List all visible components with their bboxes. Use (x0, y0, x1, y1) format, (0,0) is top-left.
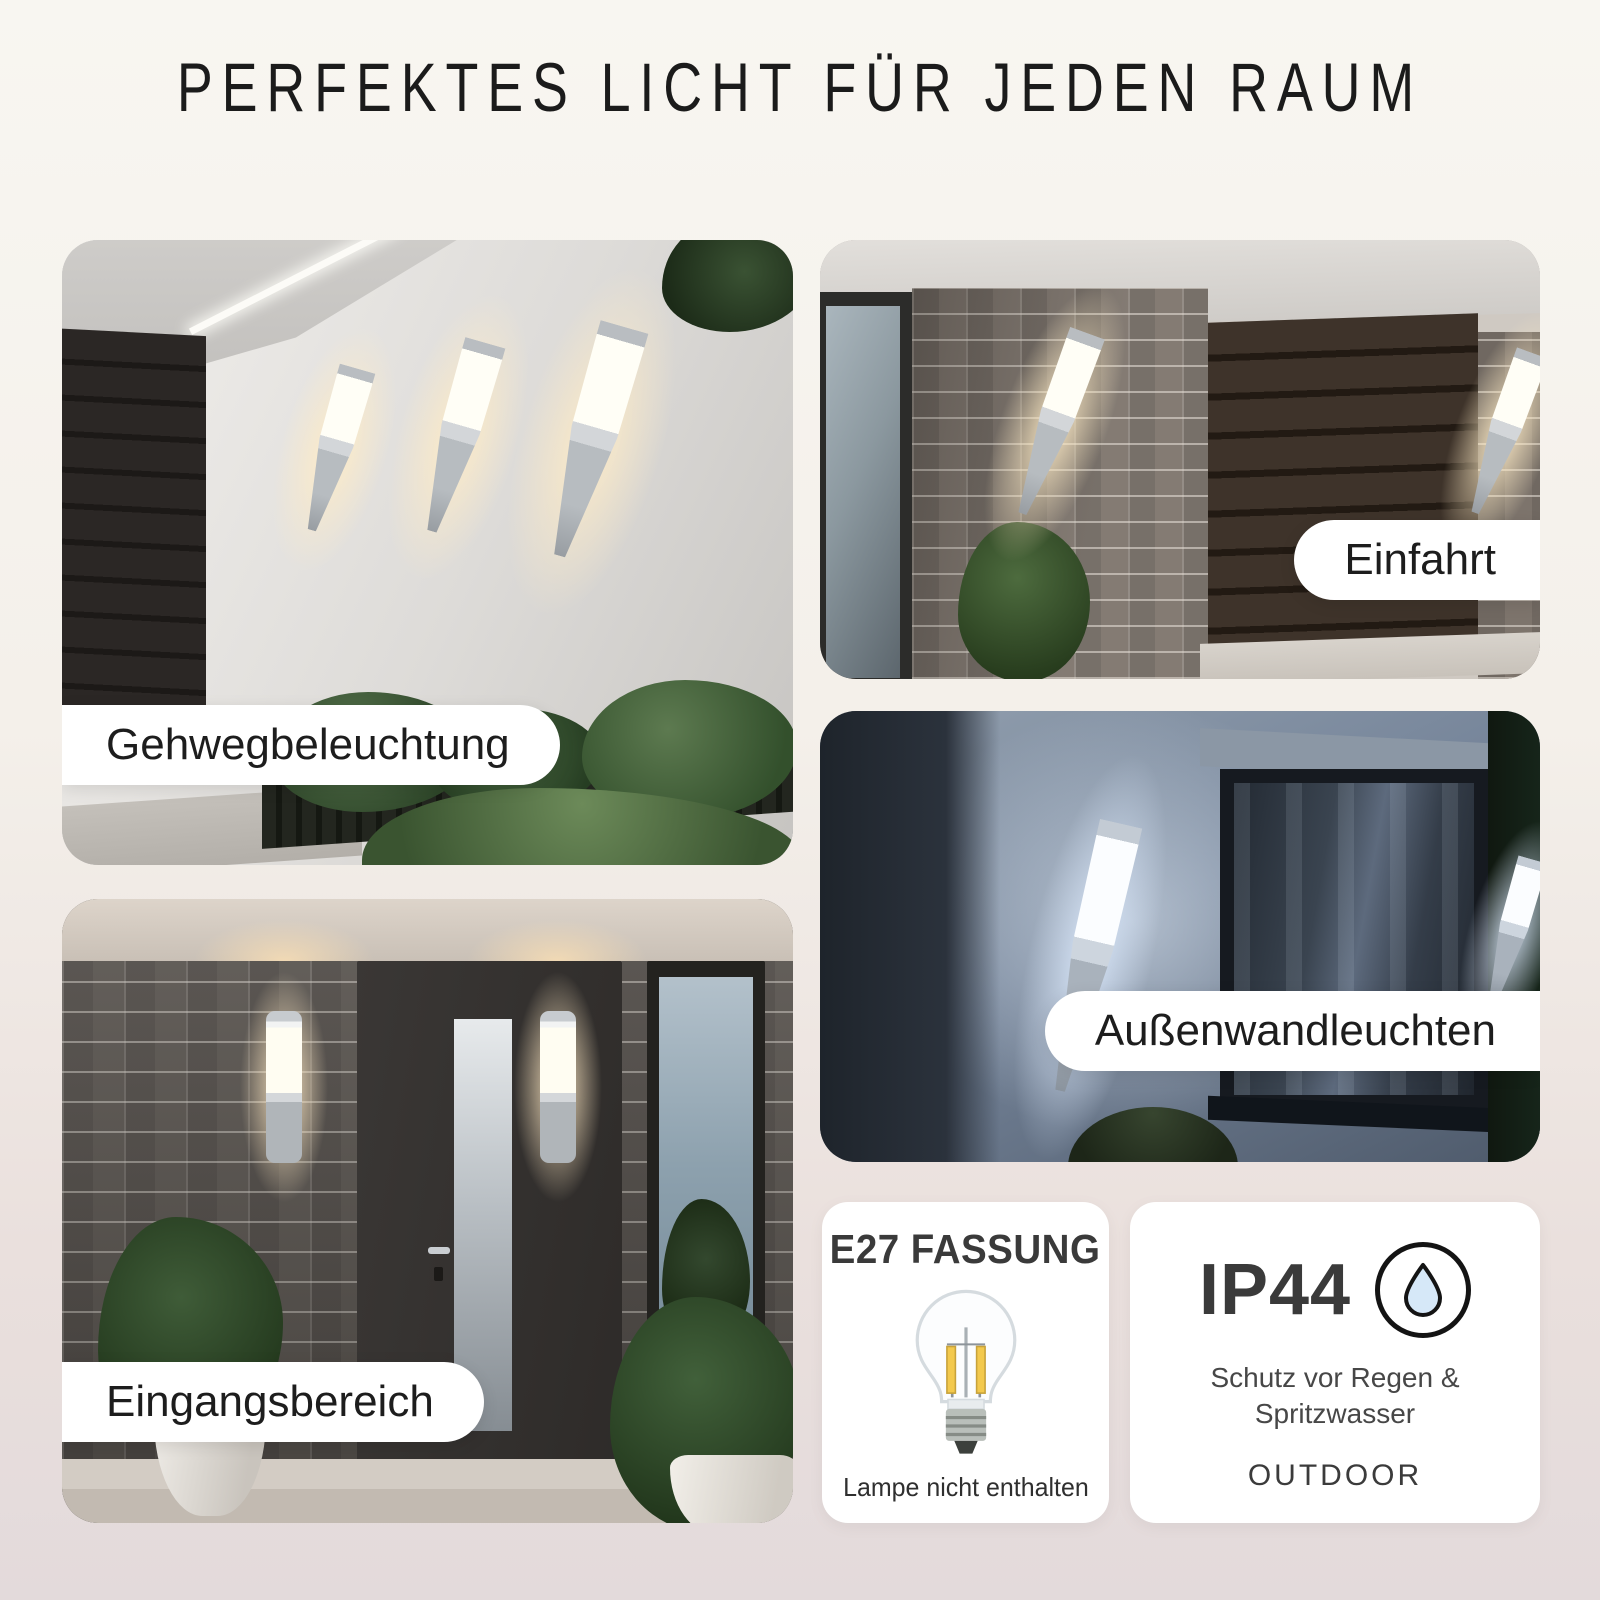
droplet-glyph (1400, 1261, 1446, 1319)
window-glass (826, 306, 900, 678)
label-aussenwandleuchten: Außenwandleuchten (1045, 991, 1540, 1071)
photo-driveway: Einfahrt (820, 240, 1540, 679)
ip44-title: IP44 (1199, 1249, 1351, 1331)
water-droplet-icon (1375, 1242, 1471, 1338)
hanging-foliage (662, 240, 793, 332)
shadowed-wall-edge (820, 711, 1000, 1162)
wall-torch-light-3 (529, 318, 654, 564)
ip44-usage-label: OUTDOOR (1248, 1459, 1422, 1493)
door-handle (428, 1247, 450, 1254)
ip44-header: IP44 (1199, 1242, 1471, 1338)
porch-ceiling (62, 899, 793, 961)
plant-pot (670, 1455, 793, 1523)
wall-cylinder-light (266, 1011, 302, 1163)
label-einfahrt: Einfahrt (1294, 520, 1540, 600)
label-eingangsbereich: Eingangsbereich (62, 1362, 484, 1442)
dark-door (62, 328, 206, 724)
card-ip44: IP44 Schutz vor Regen & Spritzwasser OUT… (1130, 1202, 1540, 1523)
e27-card-note: Lampe nicht enthalten (843, 1472, 1089, 1503)
photo-entrance: Eingangsbereich (62, 899, 793, 1523)
page-title: PERFEKTES LICHT FÜR JEDEN RAUM (177, 48, 1423, 127)
photo-outdoor-wall-lights: Außenwandleuchten (820, 711, 1540, 1162)
wall-torch-light (1455, 346, 1540, 520)
wall-torch-light (1473, 854, 1540, 1011)
filament-bulb-icon (902, 1285, 1030, 1461)
product-infographic: PERFEKTES LICHT FÜR JEDEN RAUM Gehwegbel… (0, 0, 1600, 1600)
e27-card-title: E27 FASSUNG (830, 1226, 1101, 1273)
photo-walkway-lighting: Gehwegbeleuchtung (62, 240, 793, 865)
door-lock (434, 1267, 443, 1281)
wall-cylinder-light (540, 1011, 576, 1163)
ip44-protection-line2: Spritzwasser (1210, 1396, 1459, 1432)
label-gehwegbeleuchtung: Gehwegbeleuchtung (62, 705, 560, 785)
wall-torch-light (1000, 325, 1109, 521)
card-e27-socket: E27 FASSUNG Lampe nicht enthalten (822, 1202, 1109, 1523)
ip44-protection-text: Schutz vor Regen & Spritzwasser (1210, 1360, 1459, 1433)
ip44-protection-line1: Schutz vor Regen & (1210, 1360, 1459, 1396)
